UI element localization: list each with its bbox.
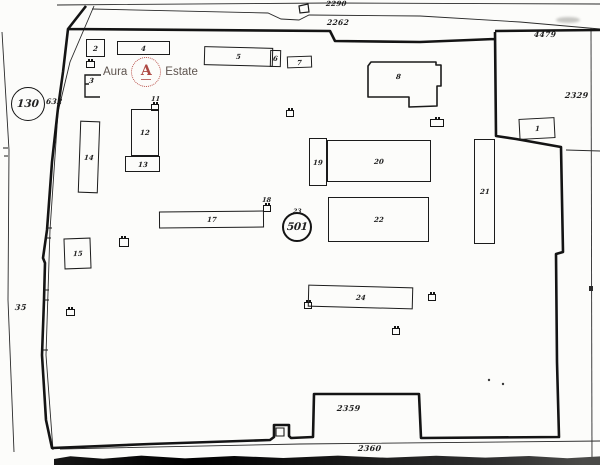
- utility-marker-icon: [286, 110, 294, 117]
- right-side-tie-line: [566, 150, 600, 151]
- utility-marker-icon: [428, 294, 436, 301]
- survey-circle-130: 130: [11, 87, 45, 121]
- building-2-label: 2: [93, 45, 98, 52]
- scan-road-strip: [54, 455, 600, 465]
- parcel-label-2329: 2329: [565, 91, 589, 99]
- building-3-label: 3: [89, 77, 95, 84]
- parcel-label-2262: 2262: [327, 19, 350, 27]
- building-12: 12: [131, 109, 159, 156]
- building-8-label: 8: [396, 73, 402, 80]
- building-15-label: 15: [73, 250, 83, 257]
- building-20: 20: [327, 140, 431, 182]
- utility-marker-icon: [86, 61, 95, 68]
- utility-marker-icon: [392, 328, 400, 335]
- building-22: 22: [328, 197, 429, 242]
- gate-symbol-icon: [299, 4, 309, 13]
- building-7: 7: [287, 56, 312, 69]
- building-24: 24: [308, 285, 414, 310]
- utility-marker-icon: [66, 309, 75, 316]
- building-15: 15: [63, 238, 91, 270]
- survey-circle-130-label: 130: [17, 99, 40, 110]
- building-22-label: 22: [373, 216, 383, 223]
- survey-dot: [502, 383, 504, 385]
- building-17-label: 17: [206, 216, 216, 223]
- building-14-label: 14: [84, 153, 94, 160]
- utility-marker-icon: [119, 238, 129, 247]
- watermark: Aura A Estate: [103, 57, 198, 87]
- boundary-notch-detail: [276, 428, 284, 436]
- utility-marker-icon: [430, 119, 444, 127]
- utility-marker-icon: [263, 205, 271, 212]
- building-12-label: 12: [140, 129, 150, 136]
- survey-circle-501-note: 23: [293, 209, 302, 215]
- building-21: 21: [474, 139, 495, 244]
- building-4-label: 4: [141, 45, 146, 52]
- survey-dot: [488, 379, 490, 381]
- building-20-label: 20: [374, 158, 384, 165]
- scan-smudge: [556, 17, 580, 23]
- building-8-outline: [368, 62, 441, 107]
- building-6: 6: [270, 50, 281, 67]
- parcel-label-2359: 2359: [337, 404, 361, 412]
- parcel-label-2290: 2290: [326, 0, 347, 7]
- building-5: 5: [204, 46, 273, 67]
- building-2: 2: [86, 39, 105, 57]
- building-17: 17: [159, 211, 264, 229]
- building-21-label: 21: [479, 188, 489, 195]
- building-6-label: 6: [273, 55, 279, 62]
- building-1: 1: [518, 117, 555, 140]
- survey-circle-501: 501: [282, 212, 312, 242]
- building-13-label: 13: [137, 161, 147, 168]
- utility-marker-icon: [151, 104, 159, 111]
- building-13: 13: [125, 156, 160, 172]
- watermark-word-left: Aura: [103, 66, 127, 78]
- watermark-logo-bar: [141, 79, 151, 80]
- road-label-632: 632: [46, 98, 63, 106]
- right-line-tick: [589, 286, 593, 291]
- building-7-label: 7: [297, 58, 302, 65]
- building-19-label: 19: [313, 159, 323, 166]
- building-19: 19: [309, 138, 327, 186]
- left-road-line: [46, 6, 94, 450]
- road-label-2360: 2360: [358, 444, 382, 452]
- watermark-logo-icon: A: [131, 57, 161, 87]
- watermark-monogram: A: [141, 64, 152, 78]
- survey-circle-501-label: 501: [286, 222, 307, 233]
- watermark-word-right: Estate: [165, 66, 198, 78]
- building-1-label: 1: [535, 125, 540, 132]
- parcel-label-4479: 4479: [534, 31, 557, 39]
- building-5-label: 5: [236, 53, 242, 60]
- utility-marker-icon: [304, 302, 312, 309]
- parcel-label-35: 35: [15, 303, 28, 311]
- right-parcel-line: [591, 28, 592, 462]
- cadastral-site-plan: 1 2 3 4 5 6 7 8 12 13 14 15 17 19 20 21 …: [0, 0, 600, 465]
- building-24-label: 24: [355, 293, 365, 300]
- building-14: 14: [78, 121, 101, 194]
- building-4: 4: [117, 41, 170, 55]
